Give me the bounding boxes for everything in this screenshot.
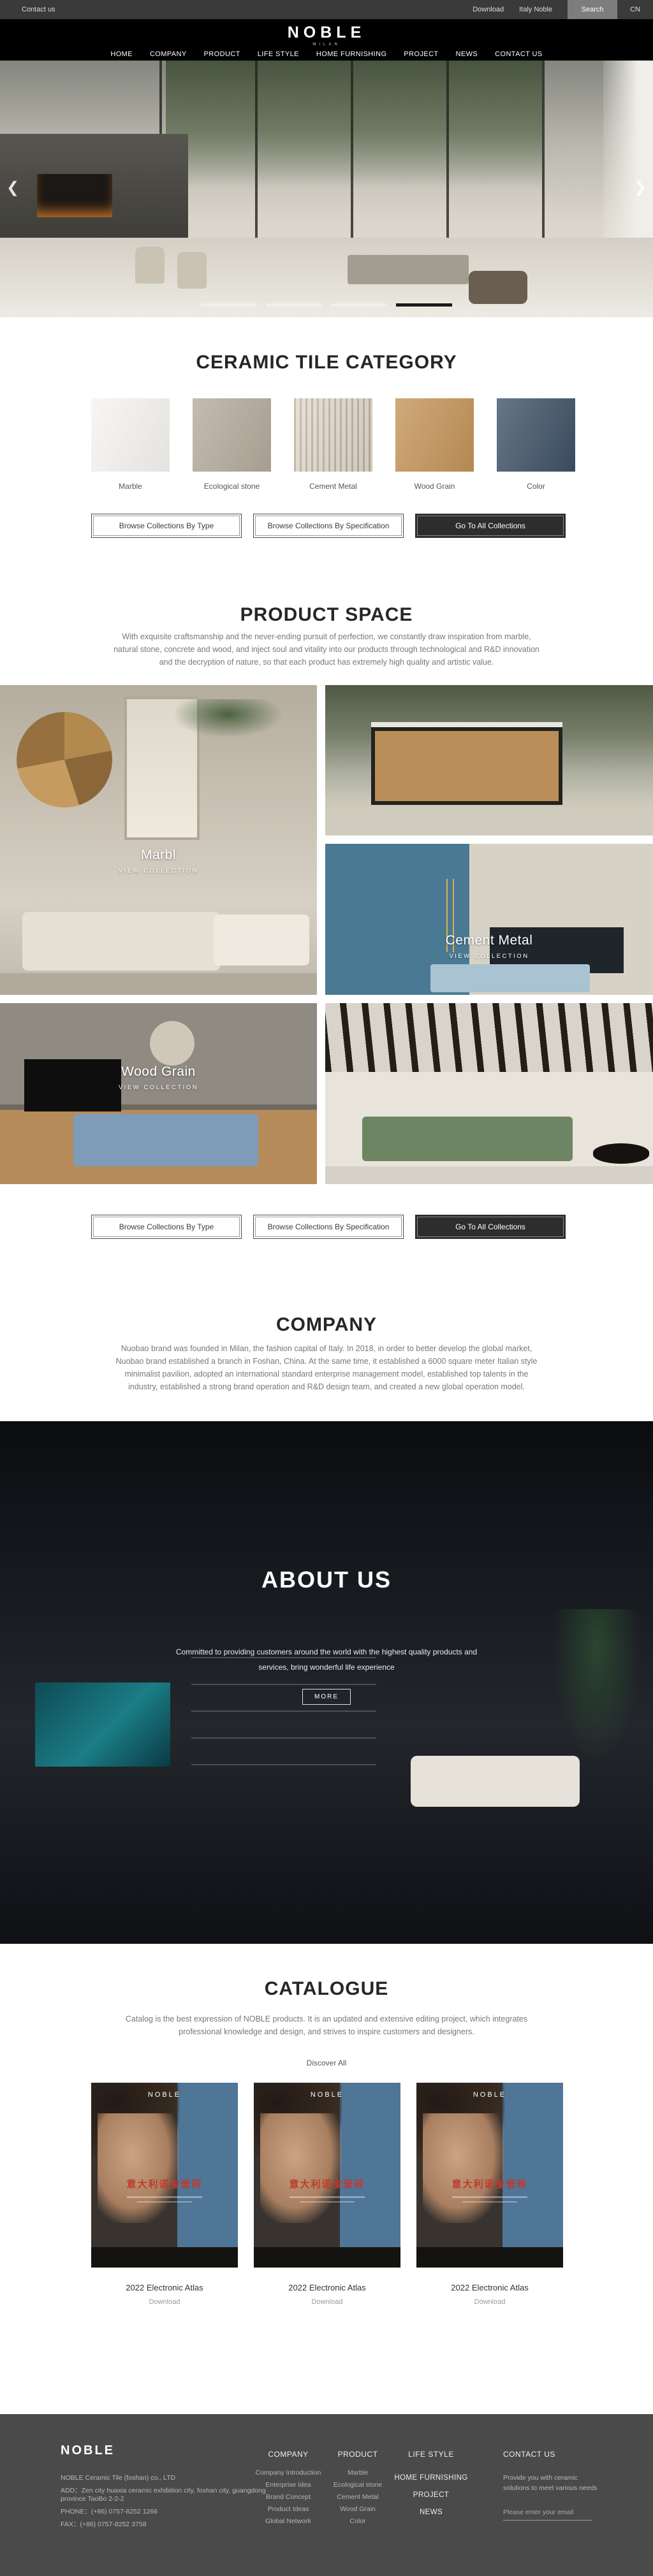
carousel-dash[interactable] (396, 303, 452, 307)
main-nav: HOMECOMPANYPRODUCTLIFE STYLEHOME FURNISH… (0, 50, 653, 58)
footer-column-title[interactable]: LIFE STYLE (393, 2450, 469, 2459)
brand-logo[interactable]: NOBLE (0, 19, 653, 42)
catalogue-download-link[interactable]: Download (91, 2298, 238, 2306)
about-sofa-image (411, 1756, 580, 1807)
poster-model-image (98, 2113, 179, 2223)
tile-swatch-image (193, 398, 271, 472)
space-card-image (214, 915, 309, 966)
category-tile[interactable]: Ecological stone (193, 398, 271, 491)
footer-nav-link[interactable]: HOME FURNISHING (393, 2474, 469, 2482)
catalogue-item-name: 2022 Electronic Atlas (416, 2283, 563, 2292)
browse-by-spec-button[interactable]: Browse Collections By Specification (253, 1215, 404, 1239)
space-paragraph: With exquisite craftsmanship and the nev… (40, 630, 613, 669)
space-card-label: Marbl VIEW COLLECTION (0, 848, 317, 874)
footer-link[interactable]: Brand Concept (241, 2491, 335, 2503)
catalogue-paragraph-line: professional knowledge and design, and s… (40, 2025, 613, 2038)
space-paragraph-line: natural stone, concrete and wood, and in… (40, 643, 613, 656)
view-collection-link[interactable]: VIEW COLLECTION (325, 953, 653, 960)
nav-item[interactable]: COMPANY (150, 50, 187, 58)
brand-logo-subtitle: MILAN (0, 43, 653, 47)
catalogue-section-title: CATALOGUE (0, 1978, 653, 2000)
catalogue-poster-cover[interactable]: NOBLE 意大利诺宝瓷砖 (416, 2083, 563, 2268)
space-card-image (22, 912, 220, 971)
poster-brand-text: NOBLE (254, 2091, 400, 2099)
space-card-lounge[interactable] (325, 1003, 653, 1184)
search-button[interactable]: Search (568, 0, 617, 19)
tile-label: Wood Grain (395, 482, 474, 491)
nav-item[interactable]: NEWS (456, 50, 478, 58)
nav-item[interactable]: HOME (110, 50, 133, 58)
category-tile[interactable]: Wood Grain (395, 398, 474, 491)
site-footer: NOBLE NOBLE Ceramic Tile (foshan) co., L… (0, 2414, 653, 2576)
poster-brand-text: NOBLE (416, 2091, 563, 2099)
poster-decoration (137, 2201, 192, 2203)
company-paragraph-line: industry, established a strong brand ope… (40, 1380, 613, 1393)
footer-link[interactable]: Ecological stone (329, 2479, 386, 2491)
poster-brand-text: NOBLE (91, 2091, 238, 2099)
go-all-collections-button[interactable]: Go To All Collections (415, 1215, 566, 1239)
tile-label: Marble (91, 482, 170, 491)
poster-model-image (423, 2113, 504, 2223)
space-card-image (593, 1143, 649, 1164)
tile-swatch-image (91, 398, 170, 472)
site-header: NOBLE MILAN HOMECOMPANYPRODUCTLIFE STYLE… (0, 19, 653, 61)
footer-contact-block: CONTACT US Provide you with ceramic solu… (503, 2450, 605, 2521)
browse-by-spec-button[interactable]: Browse Collections By Specification (253, 514, 404, 538)
footer-contact-text: Provide you with ceramic solutions to me… (503, 2473, 605, 2493)
poster-decoration (462, 2201, 517, 2203)
carousel-indicators (0, 303, 653, 307)
footer-link-list: MarbleEcological stoneCement MetalWood G… (329, 2467, 386, 2528)
category-actions: Browse Collections By Type Browse Collec… (91, 514, 566, 538)
noble-homepage: Contact us Download Italy Noble Search C… (0, 0, 653, 2576)
footer-link[interactable]: Color (329, 2515, 386, 2528)
catalogue-item: NOBLE 意大利诺宝瓷砖 2022 Electronic Atlas Down… (254, 2083, 400, 2306)
space-paragraph-line: and the decryption of nature, so that ea… (40, 656, 613, 669)
about-paragraph: Committed to providing customers around … (0, 1644, 653, 1675)
poster-headline-text: 意大利诺宝瓷砖 (91, 2177, 238, 2190)
contact-us-link[interactable]: Contact us (22, 6, 55, 13)
poster-decoration (254, 2247, 400, 2268)
catalogue-paragraph: Catalog is the best expression of NOBLE … (40, 2013, 613, 2038)
catalogue-download-link[interactable]: Download (254, 2298, 400, 2306)
category-tile[interactable]: Color (497, 398, 575, 491)
footer-column-product: PRODUCT MarbleEcological stoneCement Met… (329, 2450, 386, 2528)
view-collection-link[interactable]: VIEW COLLECTION (0, 867, 317, 874)
space-card-image (371, 727, 562, 805)
hero-carousel: ❮ ❯ (0, 61, 653, 317)
go-all-collections-button[interactable]: Go To All Collections (415, 514, 566, 538)
space-card-title: Marbl (0, 848, 317, 863)
poster-decoration (452, 2196, 527, 2198)
catalogue-item: NOBLE 意大利诺宝瓷砖 2022 Electronic Atlas Down… (91, 2083, 238, 2306)
tile-swatch-image (497, 398, 575, 472)
poster-decoration (91, 2247, 238, 2268)
space-card-image (430, 964, 590, 992)
carousel-dash[interactable] (201, 303, 257, 307)
footer-link[interactable]: Marble (329, 2467, 386, 2479)
footer-column-title[interactable]: CONTACT US (503, 2450, 605, 2459)
language-toggle-cn[interactable]: CN (630, 6, 640, 13)
hero-pouf-image (469, 271, 527, 304)
tile-label: Color (497, 482, 575, 491)
italy-noble-link[interactable]: Italy Noble (519, 6, 552, 13)
category-tile[interactable]: Marble (91, 398, 170, 491)
company-section-title: COMPANY (0, 1314, 653, 1336)
category-tile-list: Marble Ecological stone Cement Metal Woo… (91, 398, 575, 491)
space-card-image (73, 1114, 258, 1166)
space-card-marble[interactable]: Marbl VIEW COLLECTION (0, 685, 317, 995)
discover-all-link[interactable]: Discover All (0, 2059, 653, 2067)
nav-item[interactable]: LIFE STYLE (258, 50, 299, 58)
space-card-image (150, 1021, 194, 1066)
space-section-title: PRODUCT SPACE (0, 604, 653, 626)
space-card-wood-grain[interactable]: Wood Grain VIEW COLLECTION (0, 1003, 317, 1184)
space-paragraph-line: With exquisite craftsmanship and the nev… (40, 630, 613, 643)
catalogue-download-link[interactable]: Download (416, 2298, 563, 2306)
space-card-image (17, 712, 112, 807)
hero-bench-image (348, 255, 469, 284)
space-card-pavilion[interactable] (325, 685, 653, 836)
catalogue-item-name: 2022 Electronic Atlas (254, 2283, 400, 2292)
footer-link[interactable]: Wood Grain (329, 2503, 386, 2515)
download-link[interactable]: Download (473, 6, 504, 13)
poster-headline-text: 意大利诺宝瓷砖 (416, 2177, 563, 2190)
tile-swatch-image (294, 398, 372, 472)
tile-label: Ecological stone (193, 482, 271, 491)
footer-nav-list: HOME FURNISHINGPROJECTNEWS (393, 2474, 469, 2516)
browse-by-type-button[interactable]: Browse Collections By Type (91, 1215, 242, 1239)
poster-blue-panel (177, 2083, 238, 2268)
poster-blue-panel (503, 2083, 563, 2268)
poster-decoration (416, 2247, 563, 2268)
about-paragraph-line: services, bring wonderful life experienc… (0, 1660, 653, 1675)
nav-item[interactable]: PROJECT (404, 50, 438, 58)
footer-nav-link[interactable]: PROJECT (393, 2491, 469, 2499)
space-card-image (325, 1003, 653, 1072)
catalogue-poster-list: NOBLE 意大利诺宝瓷砖 2022 Electronic Atlas Down… (91, 2083, 563, 2306)
carousel-dash[interactable] (331, 303, 387, 307)
poster-model-image (260, 2113, 342, 2223)
space-card-cement-metal[interactable]: Cement Metal VIEW COLLECTION (325, 844, 653, 995)
space-actions: Browse Collections By Type Browse Collec… (91, 1215, 566, 1239)
space-card-title: Wood Grain (0, 1064, 317, 1080)
catalogue-item-name: 2022 Electronic Atlas (91, 2283, 238, 2292)
company-paragraph-line: Nuobao brand established a branch in Fos… (40, 1355, 613, 1368)
footer-column-sections: LIFE STYLE HOME FURNISHINGPROJECTNEWS (393, 2450, 469, 2526)
company-paragraph-line: minimalist pavilion, adopted an internat… (40, 1368, 613, 1380)
nav-item[interactable]: CONTACT US (495, 50, 543, 58)
tile-swatch-image (395, 398, 474, 472)
space-card-image (325, 1166, 653, 1184)
space-card-label: Wood Grain VIEW COLLECTION (0, 1064, 317, 1091)
space-card-image (0, 973, 317, 995)
hero-fireplace-image (37, 174, 112, 217)
space-card-image (325, 814, 653, 836)
space-card-label: Cement Metal VIEW COLLECTION (325, 933, 653, 960)
view-collection-link[interactable]: VIEW COLLECTION (0, 1084, 317, 1091)
email-input[interactable] (503, 2508, 592, 2521)
space-card-title: Cement Metal (325, 933, 653, 948)
hero-stool-image (177, 252, 207, 289)
footer-link[interactable]: Enterprise Idea (241, 2479, 335, 2491)
footer-link[interactable]: Product Ideas (241, 2503, 335, 2515)
footer-link[interactable]: Global Network (241, 2515, 335, 2528)
category-tile[interactable]: Cement Metal (294, 398, 372, 491)
footer-brand-logo: NOBLE (61, 2443, 115, 2458)
footer-column-title[interactable]: COMPANY (241, 2450, 335, 2459)
about-more-button[interactable]: MORE (302, 1689, 351, 1705)
poster-decoration (127, 2196, 202, 2198)
about-paragraph-line: Committed to providing customers around … (0, 1644, 653, 1660)
nav-item[interactable]: HOME FURNISHING (316, 50, 387, 58)
tile-label: Cement Metal (294, 482, 372, 491)
company-paragraph: Nuobao brand was founded in Milan, the f… (40, 1342, 613, 1393)
hero-stool-image (135, 247, 165, 284)
carousel-dash[interactable] (266, 303, 322, 307)
carousel-next-icon[interactable]: ❯ (634, 178, 647, 197)
poster-headline-text: 意大利诺宝瓷砖 (254, 2177, 400, 2190)
poster-blue-panel (340, 2083, 400, 2268)
catalogue-poster-cover[interactable]: NOBLE 意大利诺宝瓷砖 (91, 2083, 238, 2268)
space-card-image (173, 699, 282, 737)
footer-link-list: Company IntroductionEnterprise IdeaBrand… (241, 2467, 335, 2528)
poster-decoration (290, 2196, 365, 2198)
topbar-right-group: Download Italy Noble Search CN (473, 0, 653, 19)
space-card-image (362, 1117, 573, 1161)
about-title: ABOUT US (0, 1567, 653, 1593)
footer-nav-link[interactable]: NEWS (393, 2508, 469, 2516)
catalogue-paragraph-line: Catalog is the best expression of NOBLE … (40, 2013, 613, 2025)
category-section-title: CERAMIC TILE CATEGORY (0, 352, 653, 373)
company-paragraph-line: Nuobao brand was founded in Milan, the f… (40, 1342, 613, 1355)
footer-link[interactable]: Company Introduction (241, 2467, 335, 2479)
top-utility-bar: Contact us Download Italy Noble Search C… (0, 0, 653, 19)
catalogue-poster-cover[interactable]: NOBLE 意大利诺宝瓷砖 (254, 2083, 400, 2268)
browse-by-type-button[interactable]: Browse Collections By Type (91, 514, 242, 538)
about-tv-screen-image (35, 1682, 170, 1767)
footer-column-title[interactable]: PRODUCT (329, 2450, 386, 2459)
about-us-banner: ABOUT US Committed to providing customer… (0, 1421, 653, 1944)
footer-column-company: COMPANY Company IntroductionEnterprise I… (241, 2450, 335, 2528)
footer-link[interactable]: Cement Metal (329, 2491, 386, 2503)
nav-item[interactable]: PRODUCT (204, 50, 240, 58)
about-plant-image (552, 1609, 642, 1762)
catalogue-item: NOBLE 意大利诺宝瓷砖 2022 Electronic Atlas Down… (416, 2083, 563, 2306)
poster-decoration (300, 2201, 355, 2203)
product-space-grid: Marbl VIEW COLLECTION Cement Metal VIEW … (0, 685, 653, 1184)
carousel-prev-icon[interactable]: ❮ (6, 178, 19, 197)
